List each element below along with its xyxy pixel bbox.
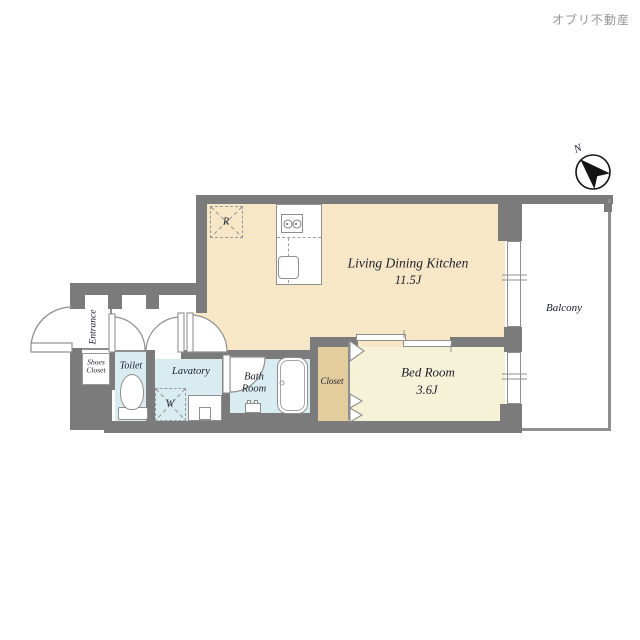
balcony-label: Balcony	[546, 302, 582, 314]
compass	[572, 151, 610, 189]
closet-bifold-bottom-b	[350, 408, 362, 422]
ldk-door-leaf	[187, 313, 193, 352]
shoes-closet-label: Shoes Closet	[86, 359, 105, 376]
lavatory-label: Lavatory	[172, 366, 210, 378]
bath-label: Bath Room	[242, 371, 267, 395]
floor-plan-page: オブリ不動産 N Living Dining Kitchen 11.5J Bed…	[0, 0, 640, 640]
lavatory-door-arc	[146, 317, 181, 352]
bedroom-label: Bed Room	[401, 366, 455, 381]
burner-right-dot	[295, 223, 297, 225]
bath-door-leaf	[223, 355, 230, 393]
toilet-door-arc	[112, 317, 145, 350]
ldk-door-arc	[190, 315, 227, 352]
brand-text: オブリ不動産	[552, 14, 630, 27]
refrigerator-label: R	[223, 216, 229, 227]
ldk-label: Living Dining Kitchen	[348, 255, 469, 270]
ldk-name: Living Dining Kitchen	[348, 255, 469, 270]
compass-north-arrow	[572, 151, 609, 188]
lavatory-door-leaf	[178, 313, 184, 352]
entrance-label: Entrance	[89, 310, 100, 345]
bath-line2: Room	[242, 383, 267, 395]
burner-left-dot	[286, 223, 288, 225]
bath-line1: Bath	[242, 371, 267, 383]
closet-label: Closet	[320, 376, 343, 386]
closet-bifold-bottom-a	[350, 394, 362, 408]
ldk-size-label: 11.5J	[395, 273, 422, 287]
toilet-label: Toilet	[120, 360, 142, 371]
closet-bifold-top	[350, 341, 364, 361]
washer-label: W	[166, 398, 174, 409]
entrance-door-arc	[31, 307, 72, 348]
shoes-closet-line2: Closet	[86, 367, 105, 375]
toilet-door-leaf	[109, 314, 115, 352]
entrance-door-leaf	[31, 343, 72, 352]
bedroom-size-label: 3.6J	[416, 383, 437, 397]
bathtub-drain	[280, 381, 284, 385]
